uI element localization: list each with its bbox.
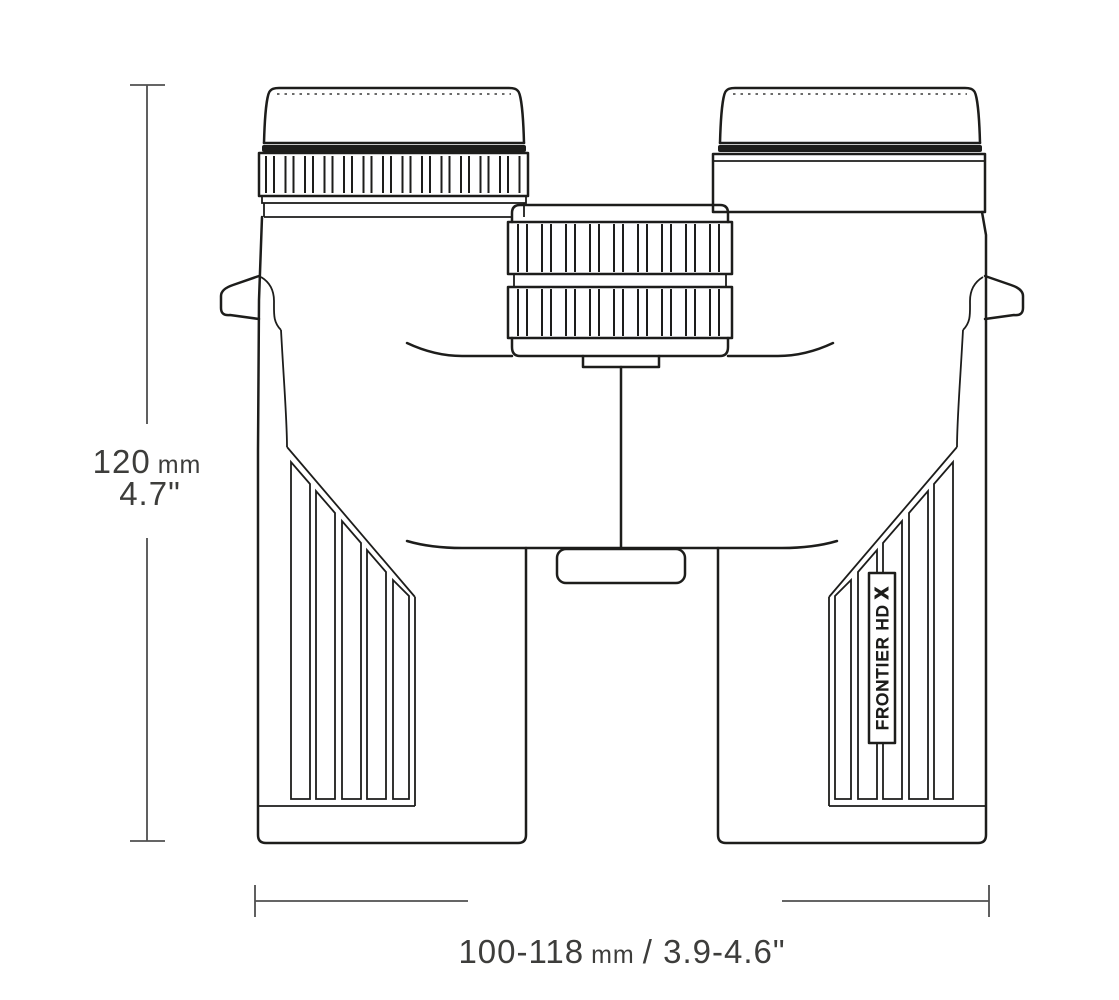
focus-wheel-bottom-cap xyxy=(512,338,728,356)
left-grip-panel xyxy=(258,447,415,806)
left-lug-hook xyxy=(261,277,281,330)
right-eyecup-cap xyxy=(720,88,980,143)
height-dimension-inches: 4.7" xyxy=(119,475,181,512)
grip-stripe xyxy=(934,462,953,799)
left-diopter-ring-ribs xyxy=(266,156,520,193)
width-dimension-label: 100-118mm/ 3.9-4.6" xyxy=(458,933,785,970)
focus-wheel-upper-ribs xyxy=(518,224,719,272)
right-eyepiece xyxy=(713,88,985,212)
hinge-bridge-plate xyxy=(557,549,685,583)
right-smooth-ring xyxy=(713,154,985,212)
left-strap-lug xyxy=(221,276,259,319)
width-dimension xyxy=(255,885,989,917)
left-eyepiece-neck xyxy=(264,203,524,217)
focus-wheel xyxy=(508,205,732,549)
left-eyepiece xyxy=(259,88,528,217)
binoculars-drawing: FRONTIER HDX xyxy=(221,88,1023,843)
right-strap-lug xyxy=(985,276,1023,319)
left-eyecup-dark-band xyxy=(262,145,526,152)
hinge-tab xyxy=(583,356,659,367)
right-barrel: FRONTIER HDX xyxy=(718,212,1023,843)
left-grip-boundary xyxy=(258,447,415,806)
left-top-shoulder xyxy=(407,343,512,356)
model-badge: FRONTIER HDX xyxy=(869,573,895,743)
grip-stripe xyxy=(342,521,361,799)
focus-wheel-lower-ribs xyxy=(518,289,719,336)
right-grip-boundary xyxy=(829,447,986,806)
left-barrel xyxy=(221,217,526,843)
right-grip-panel xyxy=(829,447,986,806)
grip-stripe xyxy=(909,491,928,799)
left-eyecup-cap xyxy=(264,88,524,143)
binoculars-dimension-diagram: 120mm 4.7" 100-118mm/ 3.9-4.6" xyxy=(0,0,1119,1000)
right-barrel-outline xyxy=(718,212,986,843)
right-eyecup-dark-band xyxy=(718,145,982,152)
right-body-groove xyxy=(957,330,963,447)
grip-stripe xyxy=(367,550,386,799)
grip-stripe xyxy=(393,580,409,799)
focus-wheel-top-cap xyxy=(512,205,728,222)
grip-stripe xyxy=(835,580,851,799)
model-badge-text: FRONTIER HDX xyxy=(872,586,892,730)
right-lug-hook xyxy=(963,277,983,330)
left-body-groove xyxy=(281,330,287,447)
grip-stripe xyxy=(316,491,335,799)
right-top-shoulder xyxy=(728,343,833,356)
left-barrel-outline xyxy=(258,217,526,843)
focus-wheel-groove xyxy=(514,274,726,287)
diagram-canvas: 120mm 4.7" 100-118mm/ 3.9-4.6" xyxy=(0,0,1119,1000)
grip-stripe xyxy=(291,462,310,799)
